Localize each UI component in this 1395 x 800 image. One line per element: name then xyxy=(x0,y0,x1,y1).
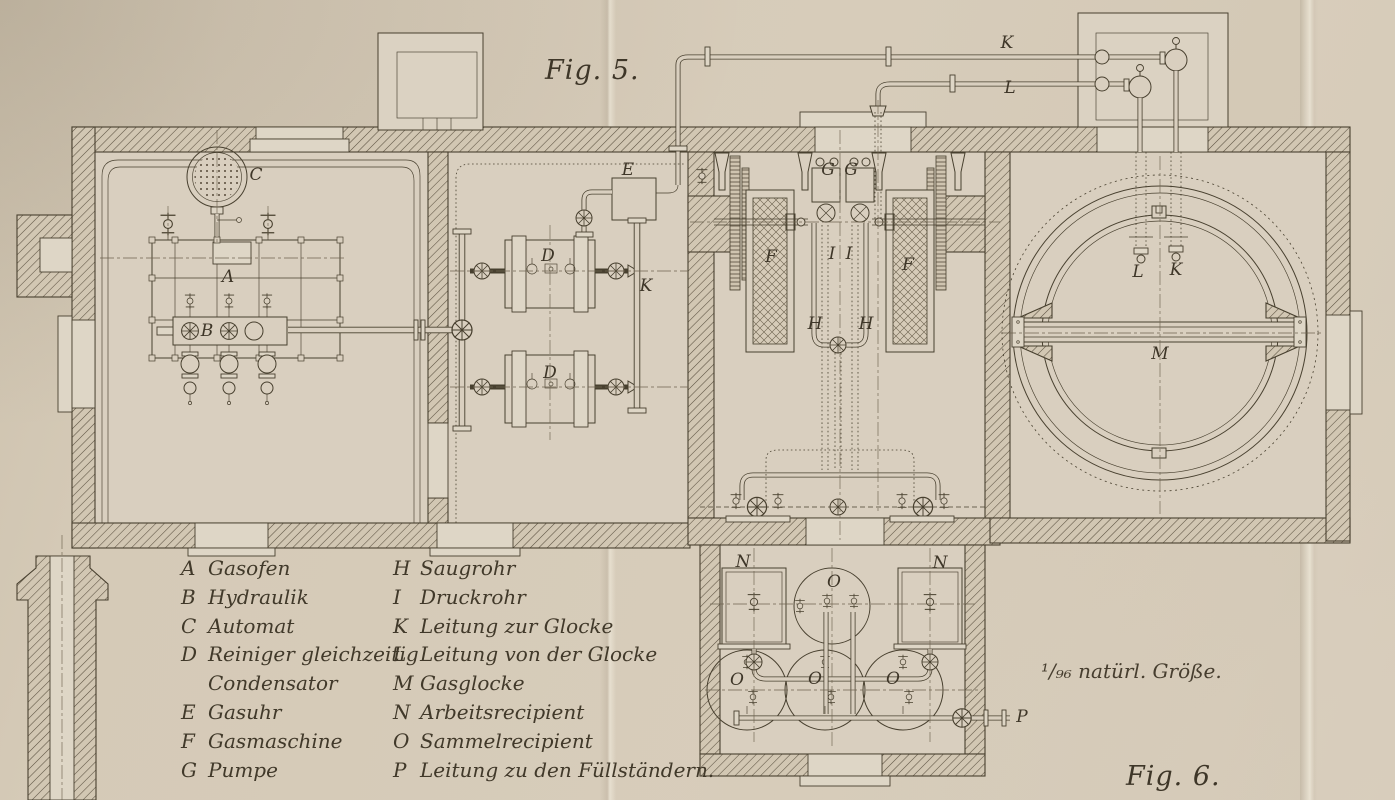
legend-key-letter: I xyxy=(393,583,420,612)
legend-key-letter: F xyxy=(181,727,208,756)
legend-row: Condensator xyxy=(181,669,419,698)
diagram-letter-label: C xyxy=(249,165,262,185)
legend-label-text: Saugrohr xyxy=(420,556,515,580)
legend-label-text: Reiniger gleichzeitig xyxy=(208,642,419,666)
figure6-title: Fig. 6. xyxy=(1126,761,1221,792)
diagram-letter-label: K xyxy=(1001,33,1014,53)
legend-column-right: HSaugrohrIDruckrohrKLeitung zur GlockeLL… xyxy=(393,554,714,784)
legend-label-text: Hydraulik xyxy=(208,585,309,609)
legend-row: FGasmaschine xyxy=(181,727,419,756)
legend-key-letter: H xyxy=(393,554,420,583)
diagram-letter-label: D xyxy=(543,363,557,383)
legend-row: PLeitung zu den Füllständern. xyxy=(393,756,714,785)
diagram-letter-label: K xyxy=(640,276,653,296)
diagram-letter-label: N xyxy=(736,552,751,572)
diagram-letter-label: L xyxy=(1004,78,1015,98)
legend-label-text: Sammelrecipient xyxy=(420,729,593,753)
scale-note: ¹/₉₆ natürl. Größe. xyxy=(1041,659,1222,683)
legend-key-letter: K xyxy=(393,612,420,641)
diagram-letter-label: P xyxy=(1016,707,1027,727)
legend-label-text: Gasglocke xyxy=(420,671,525,695)
legend-row: CAutomat xyxy=(181,612,419,641)
chimney-section xyxy=(17,556,108,800)
scanned-plate: Fig. 5. Fig. 6. ¹/₉₆ natürl. Größe. AGas… xyxy=(0,0,1395,800)
legend-row: OSammelrecipient xyxy=(393,727,714,756)
diagram-letter-label: B xyxy=(201,321,214,341)
legend-key-letter: B xyxy=(181,583,208,612)
legend-key-letter: L xyxy=(393,640,420,669)
diagram-letter-label: O xyxy=(827,572,841,592)
legend-key-letter: C xyxy=(181,612,208,641)
diagram-letter-label: O xyxy=(886,669,900,689)
diagram-letter-label: I xyxy=(829,244,836,264)
legend-label-text: Condensator xyxy=(208,671,338,695)
diagram-letter-label: A xyxy=(222,267,234,287)
legend-row: DReiniger gleichzeitig xyxy=(181,640,419,669)
diagram-letter-label: H xyxy=(859,314,874,334)
legend-label-text: Leitung zur Glocke xyxy=(420,614,613,638)
legend-label-text: Leitung von der Glocke xyxy=(420,642,657,666)
legend-key-letter: N xyxy=(393,698,420,727)
legend-row: GPumpe xyxy=(181,756,419,785)
legend-row: AGasofen xyxy=(181,554,419,583)
legend-row: IDruckrohr xyxy=(393,583,714,612)
legend-key-letter: D xyxy=(181,640,208,669)
diagram-letter-label: N xyxy=(933,553,948,573)
legend-label-text: Leitung zu den Füllständern. xyxy=(420,758,714,782)
legend-label-text: Gasuhr xyxy=(208,700,282,724)
legend-row: KLeitung zur Glocke xyxy=(393,612,714,641)
legend-row: NArbeitsrecipient xyxy=(393,698,714,727)
diagram-letter-label: M xyxy=(1151,344,1168,364)
diagram-letter-label: G xyxy=(821,160,835,180)
diagram-letter-label: F xyxy=(902,255,914,275)
diagram-letter-label: I xyxy=(846,244,853,264)
legend-label-text: Arbeitsrecipient xyxy=(420,700,584,724)
legend-label-text: Automat xyxy=(208,614,294,638)
legend-column-left: AGasofenBHydraulikCAutomatDReiniger glei… xyxy=(181,554,419,784)
diagram-letter-label: L xyxy=(1132,262,1143,282)
legend-label-text: Gasmaschine xyxy=(208,729,343,753)
legend-key-letter: P xyxy=(393,756,420,785)
diagram-letter-label: F xyxy=(765,247,777,267)
legend-label-text: Druckrohr xyxy=(420,585,526,609)
diagram-letter-label: K xyxy=(1170,260,1183,280)
legend-key-letter: A xyxy=(181,554,208,583)
legend-row: LLeitung von der Glocke xyxy=(393,640,714,669)
legend-key-letter: O xyxy=(393,727,420,756)
legend-row: EGasuhr xyxy=(181,698,419,727)
legend-row: MGasglocke xyxy=(393,669,714,698)
legend-key-letter: G xyxy=(181,756,208,785)
diagram-letter-label: G xyxy=(844,160,858,180)
legend-label-text: Gasofen xyxy=(208,556,290,580)
legend-label-text: Pumpe xyxy=(208,758,278,782)
legend-key-letter: E xyxy=(181,698,208,727)
diagram-letter-label: O xyxy=(730,670,744,690)
figure5-title: Fig. 5. xyxy=(545,55,640,86)
diagram-letter-label: D xyxy=(541,246,555,266)
diagram-letter-label: O xyxy=(808,669,822,689)
diagram-letter-label: H xyxy=(808,314,823,334)
legend-key-letter: M xyxy=(393,669,420,698)
diagram-letter-label: E xyxy=(622,160,634,180)
legend-row: HSaugrohr xyxy=(393,554,714,583)
legend-row: BHydraulik xyxy=(181,583,419,612)
